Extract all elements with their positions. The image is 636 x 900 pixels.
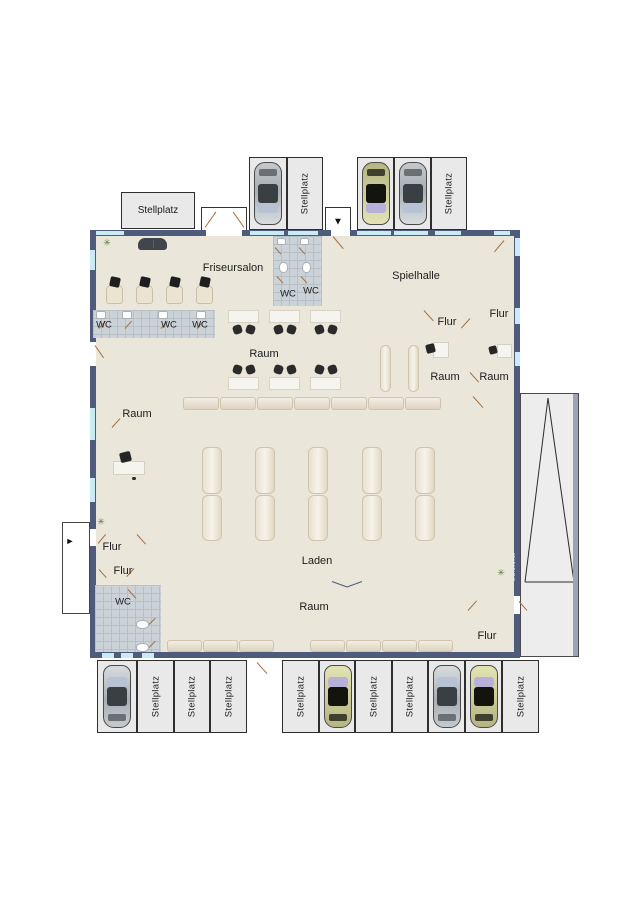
room-label-friseursalon: Friseursalon [203,262,264,274]
parking-stall: Stellplatz [121,192,195,229]
shelf [346,640,381,652]
shelf [382,640,417,652]
shelf [255,495,275,541]
window [515,308,520,324]
sink [96,311,106,319]
stall-label: Stellplatz [187,676,198,718]
window [494,231,510,235]
wc-floor-tiles [95,585,161,652]
desk [113,461,145,475]
door-swing [257,662,268,674]
stall-label: Stellplatz [368,676,379,718]
room-label-raum: Raum [479,371,508,383]
door-opening [206,230,242,236]
parking-stall: Stellplatz [392,660,428,733]
shelf [239,640,274,652]
desk [497,344,512,358]
shelf [405,397,441,410]
table [269,310,300,323]
stall-label: Stellplatz [223,676,234,718]
salon-chair [106,285,123,304]
window [142,653,154,658]
room-label-raum: Raum [430,371,459,383]
shelf [202,495,222,541]
toilet [136,643,149,652]
salon-chair-headrest [199,276,211,288]
room-label-wc: WC [280,289,296,300]
stall-label: Stellplatz [295,676,306,718]
window [250,231,284,235]
room-label-wc: WC [115,597,131,608]
table [269,377,300,390]
parking-stall [465,660,502,733]
salon-chair-headrest [109,276,121,288]
parking-stall: Stellplatz [210,660,247,733]
parking-stall: Stellplatz [355,660,392,733]
room-label-flur: Flur [490,308,509,320]
window [90,408,95,440]
parking-stall [394,157,431,230]
chair [132,477,136,480]
table [228,310,259,323]
salon-chair-headrest [169,276,181,288]
shelf [418,640,453,652]
sofa [138,238,167,250]
room-label-raum: Raum [122,408,151,420]
room-label-raum: Raum [249,348,278,360]
car [362,162,390,225]
toilet [279,262,288,273]
shelf [308,447,328,494]
door-opening [514,596,520,614]
shelf [408,345,419,392]
shelf [380,345,391,392]
shelf [331,397,367,410]
window [102,653,114,658]
shelf [167,640,202,652]
sink [277,238,286,245]
plant-icon: ✳ [103,238,111,249]
shelf [220,397,256,410]
parking-stall [357,157,394,230]
sink [158,311,168,319]
parking-stall: Stellplatz [174,660,210,733]
arrow-right-icon: ► [66,536,75,546]
room-label-wc: WC [303,286,319,297]
parking-stall: Stellplatz [282,660,319,733]
window [357,231,391,235]
shelf [257,397,293,410]
table [310,377,341,390]
parking-stall: Stellplatz [287,157,323,230]
ramp-triangle [521,394,580,658]
window [515,352,520,366]
table [228,377,259,390]
parking-stall [97,660,137,733]
room-label-flur: Flur [103,541,122,553]
car [470,665,498,728]
room-label-spielhalle: Spielhalle [392,270,440,282]
shelf [310,640,345,652]
shelf [294,397,330,410]
parking-stall: Stellplatz [137,660,174,733]
room-label-laden: Laden [302,555,333,567]
parking-stall [428,660,465,733]
window [515,238,520,256]
car [254,162,282,225]
entrance-porch [201,207,247,230]
window [435,231,461,235]
sink [196,311,206,319]
car [433,665,461,728]
room-label-wc: WC [96,320,112,331]
car [103,665,131,728]
car [399,162,427,225]
ramp-annex [520,393,579,657]
shelf [368,397,404,410]
stall-label: Stellplatz [150,676,161,718]
wall [573,394,578,656]
salon-chair [136,285,153,304]
window [96,231,124,235]
window [121,653,133,658]
stall-label: Stellplatz [138,205,179,216]
room-label-wc: WC [161,320,177,331]
salon-chair [166,285,183,304]
arrow-down-icon: ▼ [333,217,343,228]
shelf [202,447,222,494]
toilet [302,262,311,273]
shelf [415,495,435,541]
door-opening [331,230,350,236]
shelf [203,640,238,652]
shelf [362,495,382,541]
window [90,250,95,270]
annex-note: o.Grundriss [508,542,520,592]
room-label-raum: Raum [299,601,328,613]
table [310,310,341,323]
stall-label: Stellplatz [444,173,455,215]
plant-icon: ✳ [497,568,505,579]
room-label-flur: Flur [478,630,497,642]
stall-label: Stellplatz [300,173,311,215]
floor-plan: Stellplatz Stellplatz ▼ Stellplatz o.Gru… [0,0,636,900]
plant-icon: ✳ [97,517,105,528]
shelf [308,495,328,541]
room-label-wc: WC [192,320,208,331]
room-label-flur: Flur [114,565,133,577]
salon-chair [196,285,213,304]
window [90,478,95,502]
parking-stall [319,660,355,733]
salon-chair-headrest [139,276,151,288]
stall-label: Stellplatz [405,676,416,718]
stall-label: Stellplatz [515,676,526,718]
shelf [255,447,275,494]
shelf [183,397,219,410]
shelf [415,447,435,494]
room-label-flur: Flur [438,316,457,328]
parking-stall [249,157,287,230]
window [288,231,318,235]
sink [300,238,309,245]
sink [122,311,132,319]
window [394,231,428,235]
door-opening [90,529,96,546]
parking-stall: Stellplatz [502,660,539,733]
shelf [362,447,382,494]
toilet [136,620,149,629]
parking-stall: Stellplatz [431,157,467,230]
car [324,665,352,728]
